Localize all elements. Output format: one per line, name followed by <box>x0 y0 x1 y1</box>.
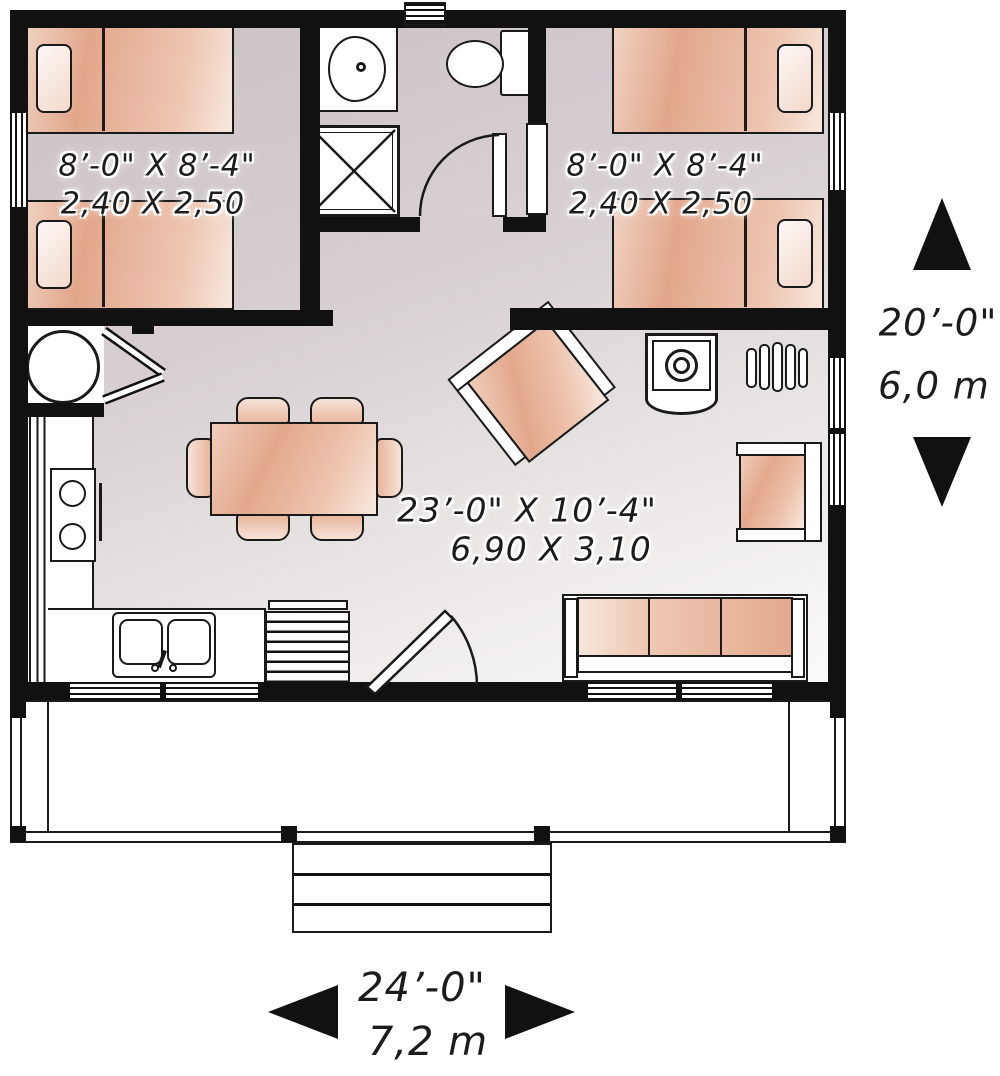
bedroom-left-dimensions-imperial: 8’-0" X 8’-4" <box>58 149 255 184</box>
toilet-bowl <box>446 40 504 88</box>
window-mullion <box>828 428 846 434</box>
bed-fold-line <box>744 26 747 131</box>
log <box>785 344 796 390</box>
shower <box>308 125 400 217</box>
dining-table <box>210 422 378 516</box>
range-stove <box>50 468 96 562</box>
pillow <box>36 220 72 289</box>
stairs-handrail <box>268 600 348 610</box>
wall-bedroom-left-bottom <box>10 310 333 326</box>
sofa-front-edge <box>577 655 793 673</box>
pillow <box>777 219 813 288</box>
window-mullion <box>676 682 682 700</box>
armchair-seat <box>739 454 806 530</box>
window <box>10 113 28 207</box>
dimension-arrow-down-icon <box>913 437 971 507</box>
dining-chair <box>310 397 364 425</box>
overall-depth-imperial: 20’-0" <box>879 302 998 345</box>
dining-chair <box>236 397 290 425</box>
wall-bathroom-bottom-right <box>503 217 546 232</box>
armchair-arm <box>736 528 808 542</box>
log <box>759 344 770 390</box>
dining-chair <box>310 513 364 541</box>
armchair <box>736 442 822 542</box>
closet-door-hinge-post <box>132 322 154 334</box>
deck-post <box>10 700 26 718</box>
sink-basin <box>119 619 163 665</box>
log <box>798 348 808 388</box>
deck-steps <box>292 843 552 933</box>
bed <box>22 24 234 134</box>
sofa-cushion <box>648 597 722 657</box>
firewood-rack <box>746 342 808 394</box>
bedroom-door-leaf <box>526 123 548 215</box>
overall-depth-metric: 6,0 m <box>878 365 990 408</box>
stairs <box>265 611 350 686</box>
window-mullion <box>160 682 166 700</box>
bedroom-right-dimensions-imperial: 8’-0" X 8’-4" <box>566 149 763 184</box>
kitchen-sink <box>112 612 216 678</box>
deck-post <box>281 826 297 842</box>
bed-fold-line <box>102 26 105 131</box>
bedroom-right-dimensions-metric: 2,40 X 2,50 <box>569 187 753 222</box>
dining-chair <box>376 438 403 498</box>
stove-handle <box>99 483 102 541</box>
deck-railing-line <box>47 702 49 833</box>
faucet-dot <box>356 62 366 72</box>
wood-stove <box>645 333 718 415</box>
wall-bathroom-left <box>300 10 320 326</box>
armchair-back <box>804 442 822 542</box>
pillow <box>36 44 72 113</box>
stove-hearth <box>645 395 718 415</box>
burner <box>59 523 86 550</box>
deck-post <box>10 826 26 842</box>
floor-plan: 8’-0" X 8’-4" 2,40 X 2,50 8’-0" X 8’-4" … <box>0 0 1000 1076</box>
living-room-dimensions-imperial: 23’-0" X 10’-4" <box>397 491 657 530</box>
bedroom-left-dimensions-metric: 2,40 X 2,50 <box>61 187 245 222</box>
bathroom-door-leaf <box>492 133 507 217</box>
deck-post <box>830 700 846 718</box>
overall-width-imperial: 24’-0" <box>358 965 486 1011</box>
dining-chair <box>186 438 213 498</box>
window <box>404 2 446 26</box>
water-heater <box>26 330 100 404</box>
overall-width-metric: 7,2 m <box>368 1019 488 1065</box>
sofa-cushion <box>720 597 793 657</box>
sofa <box>562 594 808 682</box>
wall-bathroom-right-upper <box>528 10 546 123</box>
deck-railing-line <box>788 702 790 833</box>
dimension-arrow-left-icon <box>268 985 338 1039</box>
log <box>772 342 783 392</box>
bed <box>612 24 824 134</box>
stove-body <box>645 333 718 398</box>
dimension-arrow-right-icon <box>505 985 575 1039</box>
wall-bathroom-bottom-left <box>300 217 420 232</box>
faucet <box>169 664 177 672</box>
dining-chair <box>236 513 290 541</box>
sofa-cushion <box>577 597 650 657</box>
stove-flue-ring-inner <box>673 357 690 374</box>
burner <box>59 480 86 507</box>
dimension-arrow-up-icon <box>913 198 971 270</box>
sofa-arm <box>564 598 578 678</box>
wall-closet-bottom <box>18 403 104 417</box>
pillow <box>777 44 813 113</box>
living-room-dimensions-metric: 6,90 X 3,10 <box>450 530 652 569</box>
deck-railing <box>20 700 836 833</box>
deck-post <box>830 826 846 842</box>
deck-post <box>534 826 550 842</box>
log <box>746 348 757 388</box>
wall-bedroom-right-bottom <box>510 308 846 330</box>
window <box>828 113 846 190</box>
sofa-arm <box>791 598 805 678</box>
sink-basin <box>167 619 211 665</box>
